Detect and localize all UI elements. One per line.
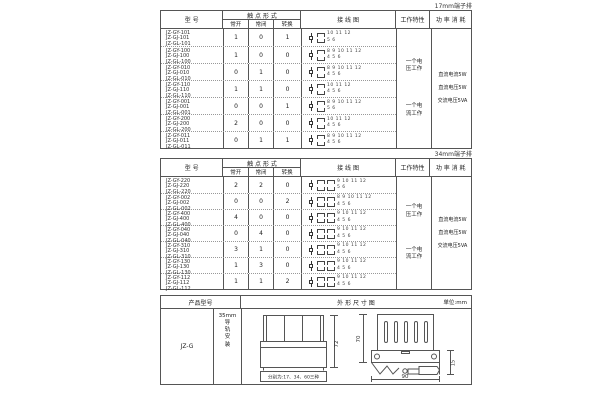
contact-bracket-icon [317, 57, 325, 61]
coil-icon [309, 36, 313, 40]
header-contact-subcolumns: 常开 常闭 转换 [223, 20, 300, 28]
top-terminal-numbers: 9 10 11 12 [337, 276, 366, 281]
bottom-contact-line: 4 5 6 [317, 203, 372, 208]
coil-icon [309, 121, 313, 125]
contact-bracket-icon [327, 261, 335, 265]
contact-bracket-icon [317, 50, 325, 54]
model-numbers: JZ-GY-040 JZ-GJ-040 JZ-GL-040 [161, 226, 223, 241]
top-terminal-numbers: 9 10 11 12 [337, 228, 366, 233]
product-model-value: JZ-G [161, 309, 213, 384]
top-contact-line: 10 11 12 [317, 118, 351, 123]
contact-bracket-icon [317, 39, 325, 43]
normally-closed-count: 0 [248, 115, 273, 131]
model-numbers: JZ-GY-400 JZ-GJ-400 JZ-GL-400 [161, 210, 223, 225]
header-normally-open: 常开 [223, 20, 248, 28]
side-clip-dim: 15 [451, 359, 457, 365]
contact-bracket-icon [317, 118, 325, 122]
contact-bracket-icon [327, 251, 335, 255]
normally-closed-count: 0 [248, 210, 273, 225]
normally-open-count: 1 [223, 47, 248, 63]
changeover-count: 0 [273, 81, 301, 97]
wiring-diagram: 9 10 11 12 4 5 6 [301, 258, 396, 273]
header-contact-form-block: 触 点 形 式 常开 常闭 转换 [222, 11, 300, 28]
header-normally-open: 常开 [223, 168, 248, 176]
coil-icon [309, 70, 313, 74]
normally-closed-count: 1 [248, 64, 273, 80]
coil-icon [309, 53, 313, 57]
front-width-note: 分别为:17、34、60三种 [268, 373, 320, 380]
header-contact-subcolumns: 常开 常闭 转换 [223, 168, 300, 176]
contact-group: 9 10 11 12 4 5 6 [317, 244, 366, 255]
changeover-count: 2 [273, 274, 301, 289]
contact-bracket-icon [317, 142, 325, 146]
contact-bracket-icon [327, 197, 335, 201]
model-numbers: JZ-GY-101 JZ-GJ-101 JZ-GL-101 [161, 29, 223, 46]
contact-bracket-icon [327, 219, 335, 223]
bottom-terminal-numbers: 4 5 6 [337, 267, 351, 272]
top-terminal-numbers: 10 11 12 [327, 84, 351, 89]
normally-closed-count: 1 [248, 242, 273, 257]
wiring-diagram: 10 11 12 4 5 6 [301, 115, 396, 131]
top-terminal-numbers: 10 11 12 [327, 118, 351, 123]
changeover-count: 1 [273, 132, 301, 148]
contact-bracket-icon [327, 245, 335, 249]
header-power-consumption: 功 率 消 耗 [429, 159, 471, 176]
header-contact-form: 触 点 形 式 [223, 159, 300, 168]
header-outline-drawing: 外 形 尺 寸 图 单位:mm [241, 296, 471, 308]
contact-bracket-icon [317, 135, 325, 139]
contact-bracket-icon [327, 180, 335, 184]
coil-icon [309, 280, 313, 284]
contact-bracket-icon [317, 108, 325, 112]
dc-current-power: 直流电流5W [438, 73, 466, 78]
dc-voltage-power: 直流电压5W [438, 231, 466, 236]
dc-current-power: 直流电流5W [438, 218, 466, 223]
table-header: 型 号 触 点 形 式 常开 常闭 转换 接 线 图 工作特性 功 率 消 耗 [161, 159, 471, 177]
wiring-diagram: 8 9 10 11 12 4 5 6 [301, 47, 396, 63]
contact-group: 8 9 10 11 12 4 5 6 [317, 135, 362, 146]
side-view-drawing: 70 15 90 [353, 311, 463, 383]
front-view-drawing: 72 分别为:17、34、60三种 [250, 311, 345, 383]
contact-bracket-icon [317, 197, 325, 201]
model-numbers: JZ-GY-112 JZ-GJ-112 JZ-GL-112 [161, 274, 223, 289]
normally-closed-count: 3 [248, 258, 273, 273]
table-row: JZ-GY-110 JZ-GJ-110 JZ-GL-110 1 1 0 10 1… [161, 80, 396, 97]
header-wiring-diagram: 接 线 图 [300, 159, 394, 176]
wiring-diagram: 8 9 10 11 12 4 5 6 [301, 132, 396, 148]
normally-closed-count: 0 [248, 47, 273, 63]
wiring-diagram: 8 9 10 11 12 4 5 6 [301, 64, 396, 80]
contact-bracket-icon [317, 187, 325, 191]
top-contact-line: 10 11 12 [317, 84, 351, 89]
header-normally-closed: 常闭 [248, 168, 273, 176]
top-contact-line: 9 10 11 12 [317, 260, 366, 265]
bottom-terminal-numbers: 5 6 [337, 186, 346, 191]
outline-drawings: 72 分别为:17、34、60三种 [241, 309, 471, 384]
working-characteristic-column: 一个电 压工作 一个电 流工作 [396, 29, 431, 148]
changeover-count: 1 [273, 29, 301, 46]
model-numbers: JZ-GY-110 JZ-GJ-110 JZ-GL-110 [161, 81, 223, 97]
working-characteristic-column: 一个电 压工作 一个电 流工作 [396, 177, 431, 289]
contact-bracket-icon [317, 219, 325, 223]
top-terminal-numbers: 8 9 10 11 12 [327, 67, 362, 72]
normally-open-count: 1 [223, 81, 248, 97]
header-working-characteristic: 工作特性 [395, 159, 430, 176]
contact-group: 8 9 10 11 12 4 5 6 [317, 50, 362, 61]
contact-bracket-icon [327, 235, 335, 239]
normally-closed-count: 2 [248, 177, 273, 193]
normally-closed-count: 4 [248, 226, 273, 241]
contact-bracket-icon [327, 267, 335, 271]
contact-bracket-icon [317, 261, 325, 265]
wiring-diagram: 9 10 11 12 5 6 [301, 177, 396, 193]
contact-bracket-icon [327, 203, 335, 207]
ac-voltage-power: 交流电压5VA [438, 244, 468, 249]
contact-group: 9 10 11 12 4 5 6 [317, 276, 366, 287]
header-normally-closed: 常闭 [248, 20, 273, 28]
contact-bracket-icon [317, 283, 325, 287]
contact-bracket-icon [317, 213, 325, 217]
outline-drawing-title: 外 形 尺 寸 图 [337, 298, 375, 307]
side-height-dim: 70 [356, 335, 362, 342]
bottom-contact-line: 4 5 6 [317, 73, 362, 78]
coil-icon [309, 200, 313, 204]
contact-group: 10 11 12 4 5 6 [317, 118, 351, 129]
bottom-terminal-numbers: 4 5 6 [327, 73, 341, 78]
changeover-count: 2 [273, 194, 301, 209]
terminal-block-label-17mm: 17mm端子排 [160, 1, 472, 10]
contact-bracket-icon [327, 283, 335, 287]
coil-icon [309, 248, 313, 252]
header-changeover: 转换 [273, 20, 301, 28]
top-terminal-numbers: 9 10 11 12 [337, 180, 366, 185]
top-contact-line: 9 10 11 12 [317, 212, 366, 217]
normally-open-count: 0 [223, 194, 248, 209]
top-contact-line: 8 9 10 11 12 [317, 135, 362, 140]
normally-closed-count: 0 [248, 29, 273, 46]
normally-closed-count: 0 [248, 98, 273, 114]
coil-icon [309, 87, 313, 91]
bottom-terminal-numbers: 4 5 6 [327, 124, 341, 129]
mounting-type: 35mm 导 轨 安 装 [213, 309, 241, 384]
contact-group: 9 10 11 12 4 5 6 [317, 228, 366, 239]
dimension-table: 产品型号 外 形 尺 寸 图 单位:mm JZ-G 35mm 导 轨 安 装 [160, 295, 472, 385]
contact-bracket-icon [317, 74, 325, 78]
normally-closed-count: 1 [248, 81, 273, 97]
top-contact-line: 9 10 11 12 [317, 180, 366, 185]
normally-open-count: 4 [223, 210, 248, 225]
contact-group: 10 11 12 5 6 [317, 32, 351, 43]
contact-bracket-icon [317, 125, 325, 129]
ac-voltage-power: 交流电压5VA [438, 99, 468, 104]
contact-bracket-icon [317, 84, 325, 88]
top-contact-line: 8 9 10 11 12 [317, 50, 362, 55]
voltage-operation-label: 一个电 压工作 [406, 204, 423, 219]
model-numbers: JZ-GY-100 JZ-GJ-100 JZ-GL-100 [161, 47, 223, 63]
normally-open-count: 3 [223, 242, 248, 257]
terminal-block-label-34mm: 34mm端子排 [160, 149, 472, 158]
contact-group: 10 11 12 4 5 6 [317, 84, 351, 95]
top-contact-line: 8 9 10 11 12 [317, 67, 362, 72]
bottom-contact-line: 4 5 6 [317, 235, 366, 240]
normally-open-count: 2 [223, 177, 248, 193]
top-contact-line: 9 10 11 12 [317, 228, 366, 233]
coil-icon [309, 216, 313, 220]
table-header: 型 号 触 点 形 式 常开 常闭 转换 接 线 图 工作特性 功 率 消 耗 [161, 11, 471, 29]
header-contact-form: 触 点 形 式 [223, 11, 300, 20]
bottom-contact-line: 5 6 [317, 107, 362, 112]
contact-group: 8 9 10 11 12 4 5 6 [317, 196, 372, 207]
header-changeover: 转换 [273, 168, 301, 176]
contact-bracket-icon [317, 229, 325, 233]
contact-bracket-icon [317, 277, 325, 281]
front-height-dim: 72 [334, 340, 340, 347]
wiring-diagram: 9 10 11 12 4 5 6 [301, 210, 396, 225]
model-numbers: JZ-GY-200 JZ-GJ-200 JZ-GL-200 [161, 115, 223, 131]
bottom-terminal-numbers: 4 5 6 [327, 141, 341, 146]
header-working-characteristic: 工作特性 [395, 11, 430, 28]
wiring-diagram: 8 9 10 11 12 4 5 6 [301, 194, 396, 209]
table-row: JZ-GY-100 JZ-GJ-100 JZ-GL-100 1 0 0 8 9 … [161, 46, 396, 63]
model-numbers: JZ-GY-010 JZ-GJ-010 JZ-GL-010 [161, 64, 223, 80]
bottom-terminal-numbers: 4 5 6 [327, 90, 341, 95]
normally-closed-count: 1 [248, 132, 273, 148]
wiring-diagram: 9 10 11 12 4 5 6 [301, 242, 396, 257]
changeover-count: 0 [273, 47, 301, 63]
header-model: 型 号 [161, 159, 222, 176]
current-operation-label: 一个电 流工作 [406, 103, 423, 118]
contact-bracket-icon [327, 277, 335, 281]
bottom-terminal-numbers: 4 5 6 [337, 219, 351, 224]
contact-bracket-icon [317, 245, 325, 249]
dimension-table-header: 产品型号 外 形 尺 寸 图 单位:mm [161, 296, 471, 309]
wiring-diagram: 8 9 10 11 12 5 6 [301, 98, 396, 114]
model-numbers: JZ-GY-001 JZ-GJ-001 JZ-GL-001 [161, 98, 223, 114]
changeover-count: 1 [273, 98, 301, 114]
table-row: JZ-GY-002 JZ-GJ-002 JZ-GL-002 0 0 2 8 9 … [161, 193, 396, 209]
top-terminal-numbers: 8 9 10 11 12 [337, 196, 372, 201]
header-product-model: 产品型号 [161, 296, 241, 308]
bottom-contact-line: 4 5 6 [317, 251, 366, 256]
model-rows: JZ-GY-220 JZ-GJ-220 JZ-GL-220 2 2 0 9 10… [161, 177, 396, 289]
model-numbers: JZ-GY-310 JZ-GJ-310 JZ-GL-310 [161, 242, 223, 257]
table-row: JZ-GY-101 JZ-GJ-101 JZ-GL-101 1 0 1 10 1… [161, 29, 396, 46]
contact-group: 9 10 11 12 5 6 [317, 180, 366, 191]
unit-label: 单位:mm [443, 298, 467, 306]
table-row: JZ-GY-010 JZ-GJ-010 JZ-GL-010 0 1 0 8 9 … [161, 63, 396, 80]
top-terminal-numbers: 8 9 10 11 12 [327, 50, 362, 55]
changeover-count: 0 [273, 115, 301, 131]
normally-open-count: 0 [223, 98, 248, 114]
top-contact-line: 9 10 11 12 [317, 276, 366, 281]
table-row: JZ-GY-011 JZ-GJ-011 JZ-GL-011 0 1 1 8 9 … [161, 131, 396, 148]
normally-open-count: 1 [223, 258, 248, 273]
normally-open-count: 1 [223, 274, 248, 289]
contact-bracket-icon [317, 180, 325, 184]
contact-bracket-icon [317, 235, 325, 239]
model-numbers: JZ-GY-220 JZ-GJ-220 JZ-GL-220 [161, 177, 223, 193]
coil-icon [309, 264, 313, 268]
bottom-contact-line: 4 5 6 [317, 124, 351, 129]
model-numbers: JZ-GY-011 JZ-GJ-011 JZ-GL-011 [161, 132, 223, 148]
spec-table-34mm: 型 号 触 点 形 式 常开 常闭 转换 接 线 图 工作特性 功 率 消 耗 … [160, 158, 472, 290]
table-row: JZ-GY-001 JZ-GJ-001 JZ-GL-001 0 0 1 8 9 … [161, 97, 396, 114]
contact-bracket-icon [327, 213, 335, 217]
bottom-terminal-numbers: 4 5 6 [327, 56, 341, 61]
power-consumption-column: 直流电流5W 直流电压5W 交流电压5VA [431, 177, 473, 289]
bottom-terminal-numbers: 4 5 6 [337, 251, 351, 256]
contact-group: 8 9 10 11 12 5 6 [317, 101, 362, 112]
normally-closed-count: 0 [248, 194, 273, 209]
table-row: JZ-GY-112 JZ-GJ-112 JZ-GL-112 1 1 2 9 10… [161, 273, 396, 289]
normally-open-count: 1 [223, 29, 248, 46]
power-consumption-column: 直流电流5W 直流电压5W 交流电压5VA [431, 29, 473, 148]
header-wiring-diagram: 接 线 图 [300, 11, 394, 28]
coil-icon [309, 104, 313, 108]
wiring-diagram: 10 11 12 4 5 6 [301, 81, 396, 97]
contact-bracket-icon [317, 267, 325, 271]
normally-open-count: 0 [223, 64, 248, 80]
wiring-diagram: 9 10 11 12 4 5 6 [301, 274, 396, 289]
bottom-terminal-numbers: 5 6 [327, 39, 336, 44]
bottom-contact-line: 4 5 6 [317, 141, 362, 146]
header-contact-form-block: 触 点 形 式 常开 常闭 转换 [222, 159, 300, 176]
spec-table-17mm: 型 号 触 点 形 式 常开 常闭 转换 接 线 图 工作特性 功 率 消 耗 … [160, 10, 472, 149]
wiring-diagram: 9 10 11 12 4 5 6 [301, 226, 396, 241]
contact-bracket-icon [327, 229, 335, 233]
catalog-page: 17mm端子排 型 号 触 点 形 式 常开 常闭 转换 接 线 图 工作特性 … [0, 0, 600, 400]
bottom-contact-line: 4 5 6 [317, 56, 362, 61]
bottom-terminal-numbers: 4 5 6 [337, 283, 351, 288]
contact-bracket-icon [317, 251, 325, 255]
top-contact-line: 8 9 10 11 12 [317, 196, 372, 201]
bottom-terminal-numbers: 5 6 [327, 107, 336, 112]
top-terminal-numbers: 9 10 11 12 [337, 260, 366, 265]
table-row: JZ-GY-310 JZ-GJ-310 JZ-GL-310 3 1 0 9 10… [161, 241, 396, 257]
contact-bracket-icon [317, 101, 325, 105]
model-numbers: JZ-GY-130 JZ-GJ-130 JZ-GL-130 [161, 258, 223, 273]
top-contact-line: 10 11 12 [317, 32, 351, 37]
dc-voltage-power: 直流电压5W [438, 86, 466, 91]
contact-bracket-icon [327, 187, 335, 191]
table-body: JZ-GY-220 JZ-GJ-220 JZ-GL-220 2 2 0 9 10… [161, 177, 471, 289]
coil-icon [309, 183, 313, 187]
contact-group: 8 9 10 11 12 4 5 6 [317, 67, 362, 78]
dimension-table-body: JZ-G 35mm 导 轨 安 装 [161, 309, 471, 384]
contact-bracket-icon [317, 67, 325, 71]
table-row: JZ-GY-040 JZ-GJ-040 JZ-GL-040 0 4 0 9 10… [161, 225, 396, 241]
bottom-contact-line: 4 5 6 [317, 219, 366, 224]
contact-group: 9 10 11 12 4 5 6 [317, 212, 366, 223]
normally-open-count: 2 [223, 115, 248, 131]
table-row: JZ-GY-400 JZ-GJ-400 JZ-GL-400 4 0 0 9 10… [161, 209, 396, 225]
changeover-count: 0 [273, 210, 301, 225]
top-terminal-numbers: 8 9 10 11 12 [327, 101, 362, 106]
changeover-count: 0 [273, 258, 301, 273]
top-terminal-numbers: 10 11 12 [327, 32, 351, 37]
top-terminal-numbers: 9 10 11 12 [337, 212, 366, 217]
top-terminal-numbers: 9 10 11 12 [337, 244, 366, 249]
header-model: 型 号 [161, 11, 222, 28]
bottom-contact-line: 4 5 6 [317, 90, 351, 95]
bottom-contact-line: 5 6 [317, 39, 351, 44]
top-contact-line: 8 9 10 11 12 [317, 101, 362, 106]
wiring-diagram: 10 11 12 5 6 [301, 29, 396, 46]
bottom-contact-line: 5 6 [317, 186, 366, 191]
normally-closed-count: 1 [248, 274, 273, 289]
coil-icon [309, 138, 313, 142]
contact-group: 9 10 11 12 4 5 6 [317, 260, 366, 271]
voltage-operation-label: 一个电 压工作 [406, 59, 423, 74]
table-row: JZ-GY-200 JZ-GJ-200 JZ-GL-200 2 0 0 10 1… [161, 114, 396, 131]
table-body: JZ-GY-101 JZ-GJ-101 JZ-GL-101 1 0 1 10 1… [161, 29, 471, 148]
bottom-contact-line: 4 5 6 [317, 267, 366, 272]
table-row: JZ-GY-220 JZ-GJ-220 JZ-GL-220 2 2 0 9 10… [161, 177, 396, 193]
top-contact-line: 9 10 11 12 [317, 244, 366, 249]
normally-open-count: 0 [223, 132, 248, 148]
contact-bracket-icon [317, 33, 325, 37]
bottom-contact-line: 4 5 6 [317, 283, 366, 288]
current-operation-label: 一个电 流工作 [406, 247, 423, 262]
model-rows: JZ-GY-101 JZ-GJ-101 JZ-GL-101 1 0 1 10 1… [161, 29, 396, 148]
top-terminal-numbers: 8 9 10 11 12 [327, 135, 362, 140]
coil-icon [309, 232, 313, 236]
changeover-count: 0 [273, 226, 301, 241]
table-row: JZ-GY-130 JZ-GJ-130 JZ-GL-130 1 3 0 9 10… [161, 257, 396, 273]
side-width-dim: 90 [402, 374, 409, 380]
contact-bracket-icon [317, 91, 325, 95]
header-power-consumption: 功 率 消 耗 [429, 11, 471, 28]
contact-bracket-icon [317, 203, 325, 207]
model-numbers: JZ-GY-002 JZ-GJ-002 JZ-GL-002 [161, 194, 223, 209]
changeover-count: 0 [273, 64, 301, 80]
bottom-terminal-numbers: 4 5 6 [337, 203, 351, 208]
changeover-count: 0 [273, 177, 301, 193]
bottom-terminal-numbers: 4 5 6 [337, 235, 351, 240]
changeover-count: 0 [273, 242, 301, 257]
normally-open-count: 0 [223, 226, 248, 241]
